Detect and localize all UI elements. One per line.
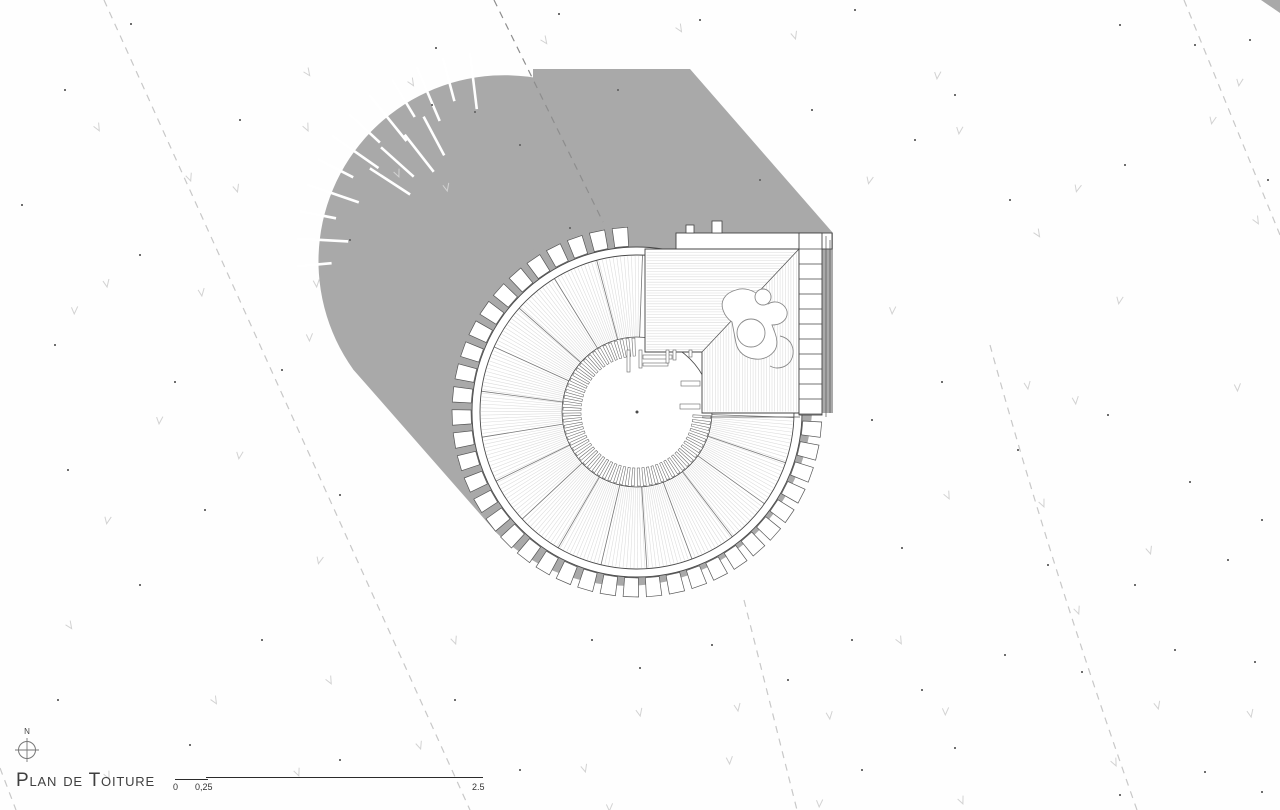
north-label: N [14,727,40,736]
scale-label-0: 0 [173,782,178,792]
scale-bar-segment-short [175,779,208,780]
scale-bar: 0 0,25 2.5 [175,774,487,796]
architectural-sheet: N Plan de Toiture 0 0,25 2.5 [0,0,1280,810]
scale-label-25: 2.5 [472,782,485,792]
north-indicator: N [14,727,40,769]
roof-plan-drawing [0,0,1280,810]
page-title: Plan de Toiture [16,770,155,792]
compass-crosshair-icon [14,736,40,764]
scale-bar-segment-long [206,777,483,778]
scale-label-025: 0,25 [195,782,213,792]
